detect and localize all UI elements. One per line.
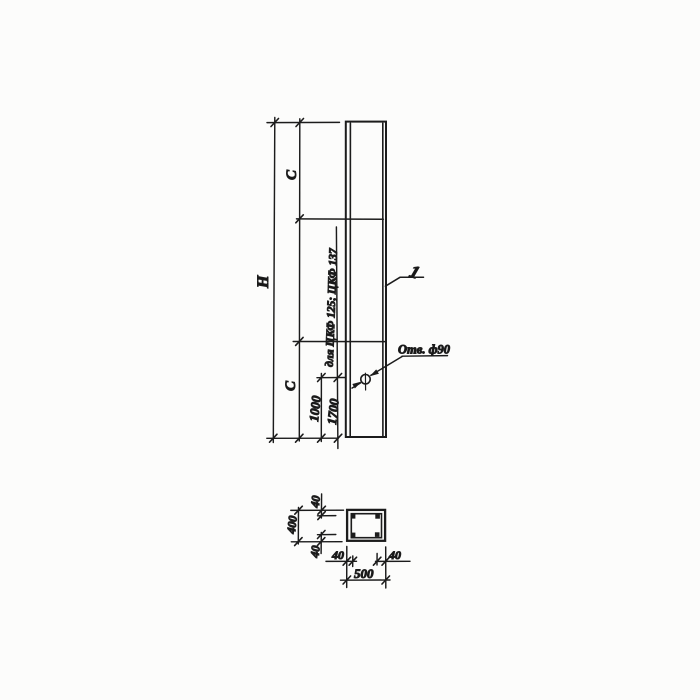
svg-text:1000: 1000 — [306, 394, 324, 422]
svg-text:C: C — [283, 380, 299, 391]
svg-text:400: 400 — [284, 515, 300, 535]
svg-text:40: 40 — [308, 495, 323, 509]
svg-text:40: 40 — [307, 545, 322, 559]
svg-text:40: 40 — [388, 548, 401, 562]
svg-text:H: H — [255, 275, 272, 289]
svg-text:1700: 1700 — [324, 397, 342, 425]
svg-text:C: C — [284, 169, 300, 180]
svg-text:40: 40 — [331, 548, 344, 562]
svg-text:Отв. ф90: Отв. ф90 — [398, 343, 451, 357]
svg-text:500: 500 — [354, 566, 374, 581]
